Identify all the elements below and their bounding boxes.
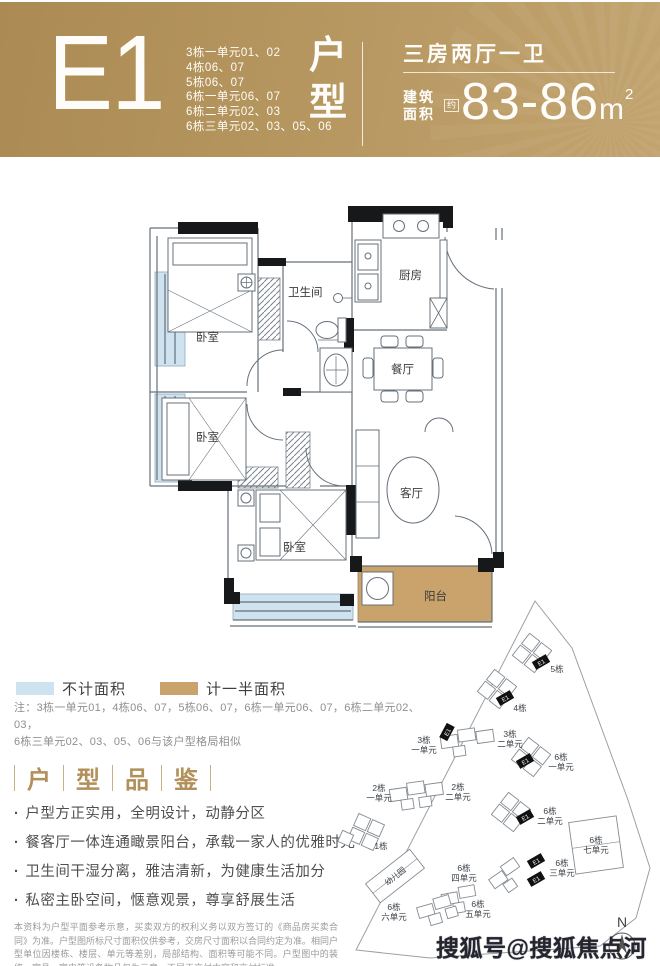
svg-text:1栋: 1栋 (374, 841, 388, 851)
selling-point: 卫生间干湿分离，雅洁清新，为健康生活加分 (14, 858, 354, 887)
sofa-icon (356, 418, 492, 554)
svg-text:七单元: 七单元 (583, 845, 609, 855)
svg-text:3栋: 3栋 (503, 729, 517, 739)
svg-text:5栋: 5栋 (550, 664, 564, 674)
room-label-bedroom3: 卧室 (283, 540, 306, 554)
watermark: 搜狐号@搜狐焦点河池站 (436, 929, 660, 966)
svg-text:6栋: 6栋 (555, 858, 569, 868)
svg-text:二单元: 二单元 (537, 816, 563, 826)
svg-text:6栋: 6栋 (471, 899, 485, 909)
area-label: 建筑 面积 (403, 89, 435, 123)
svg-text:六单元: 六单元 (381, 912, 407, 922)
room-label-living: 客厅 (400, 486, 423, 500)
selling-point: 户型方正实用，全明设计，动静分区 (14, 800, 354, 829)
svg-text:一单元: 一单元 (366, 793, 392, 803)
site-plan: E1 E1 E1 E1 E1 E1 E1 5栋 4栋 3栋 一单元 3栋 二单元… (330, 595, 660, 966)
flyer-page: E1 3栋一单元01、02 4栋06、07 5栋06、07 6栋一单元06、07… (0, 0, 660, 966)
svg-text:3栋: 3栋 (417, 735, 431, 745)
svg-text:二单元: 二单元 (445, 792, 471, 802)
selling-points: 户型方正实用，全明设计，动静分区 餐客厅一体连通瞰景阳台，承载一家人的优雅时光 … (14, 800, 354, 916)
svg-text:4栋: 4栋 (513, 703, 527, 713)
selling-point: 私密主卧空间，惬意观景，尊享舒展生活 (14, 887, 354, 916)
room-label-bathroom: 卫生间 (288, 285, 323, 299)
unit-code: E1 (48, 20, 164, 126)
legend: 不计面积 计一半面积 (16, 678, 312, 699)
svg-text:2栋: 2栋 (451, 782, 465, 792)
disclaimer-text: 本资料为户型平面参考示意，买卖双方的权利义务以双方签订的《商品房买卖合同》为准。… (14, 921, 338, 966)
svg-text:6栋: 6栋 (543, 806, 557, 816)
unit-type-vertical-label: 户 型 (306, 33, 350, 127)
selling-point: 餐客厅一体连通瞰景阳台，承载一家人的优雅时光 (14, 829, 354, 858)
room-label-dining: 餐厅 (391, 362, 414, 376)
svg-text:四单元: 四单元 (451, 873, 477, 883)
layout-type: 三房两厅一卫 (403, 38, 547, 68)
room-label-kitchen: 厨房 (399, 269, 422, 282)
svg-text:6栋: 6栋 (554, 752, 568, 762)
area-approx-tag: 约 (444, 99, 459, 112)
room-label-bedroom1: 卧室 (196, 330, 219, 344)
bed-icon (168, 238, 255, 332)
room-label-bedroom2: 卧室 (196, 430, 219, 444)
svg-text:二单元: 二单元 (497, 739, 523, 749)
svg-text:一单元: 一单元 (548, 762, 574, 772)
area-value: 83-86m2 (461, 68, 634, 137)
legend-label: 不计面积 (62, 678, 126, 699)
header-banner: E1 3栋一单元01、02 4栋06、07 5栋06、07 6栋一单元06、07… (0, 2, 660, 157)
svg-text:五单元: 五单元 (465, 909, 491, 919)
svg-text:6栋: 6栋 (589, 835, 603, 845)
legend-label: 计一半面积 (206, 678, 286, 699)
review-title: 户 型 品 鉴 (14, 760, 211, 795)
svg-text:一单元: 一单元 (411, 745, 437, 755)
svg-text:2栋: 2栋 (372, 783, 386, 793)
legend-swatch-blue (16, 682, 54, 695)
building-footprints (338, 633, 624, 928)
svg-text:6栋: 6栋 (457, 863, 471, 873)
svg-text:三单元: 三单元 (549, 868, 575, 878)
legend-swatch-tan (160, 682, 198, 695)
svg-text:N: N (617, 914, 627, 930)
svg-text:6栋: 6栋 (387, 902, 401, 912)
vertical-divider (362, 42, 363, 146)
